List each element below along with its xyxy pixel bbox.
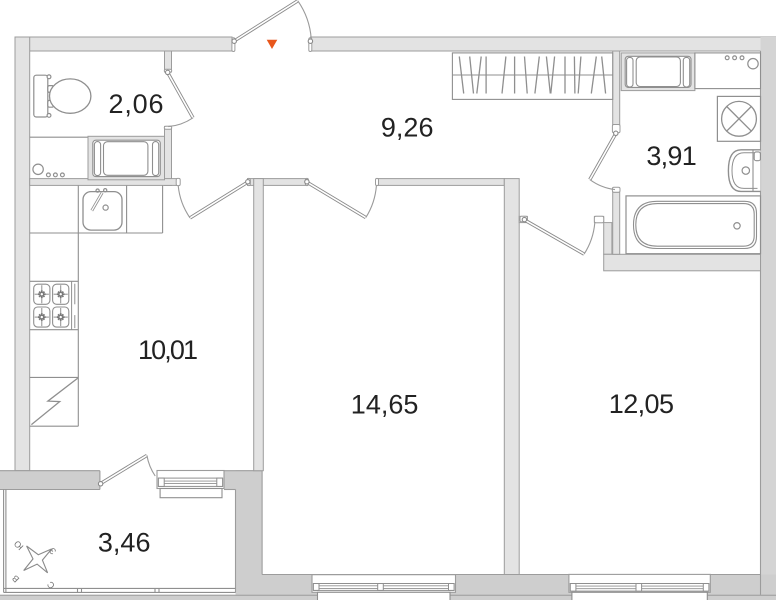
svg-text:3,46: 3,46: [98, 527, 151, 557]
svg-text:2,06: 2,06: [109, 89, 165, 119]
svg-text:10,01: 10,01: [138, 335, 197, 365]
svg-text:14,65: 14,65: [351, 390, 419, 420]
svg-text:9,26: 9,26: [381, 113, 434, 143]
svg-text:3,91: 3,91: [646, 141, 696, 171]
svg-text:12,05: 12,05: [609, 389, 674, 419]
